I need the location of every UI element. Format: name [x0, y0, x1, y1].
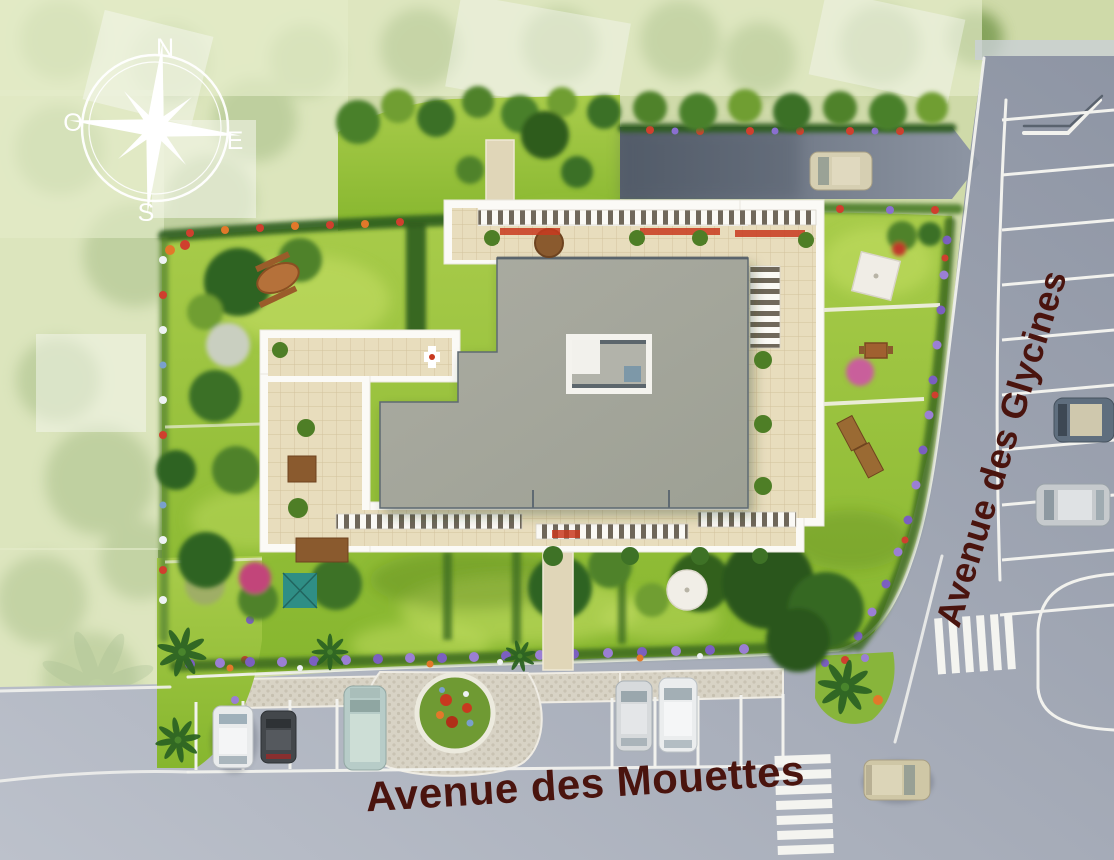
car-silver-bay [1036, 484, 1110, 526]
compass-label-north: N [156, 34, 174, 62]
white-flower-bush [206, 323, 250, 367]
driveway-shadow [620, 128, 800, 200]
pink-bush [239, 562, 271, 594]
car-blue-bay [1054, 398, 1114, 442]
skylight [624, 366, 641, 382]
compass-label-east: E [227, 127, 244, 155]
van-teal [344, 686, 386, 770]
car-beige-road [862, 760, 934, 804]
site-plan-illustration: N O E S Avenue des Glycines Avenue des M… [0, 0, 1114, 860]
car-dark [261, 711, 296, 763]
roof-courtyard [566, 334, 652, 394]
compass-label-south: S [138, 199, 155, 227]
car-beige-driveway [810, 152, 872, 190]
canopy-teal [283, 573, 317, 608]
car-white-1 [210, 706, 258, 774]
pink-bush [846, 358, 874, 386]
site-plan: N O E S Avenue des Glycines Avenue des M… [0, 0, 1114, 860]
car-silver-1 [616, 681, 652, 751]
planter-circle [417, 675, 493, 751]
compass-label-west: O [63, 109, 82, 137]
car-white-2 [659, 678, 697, 752]
red-bush [892, 242, 906, 256]
